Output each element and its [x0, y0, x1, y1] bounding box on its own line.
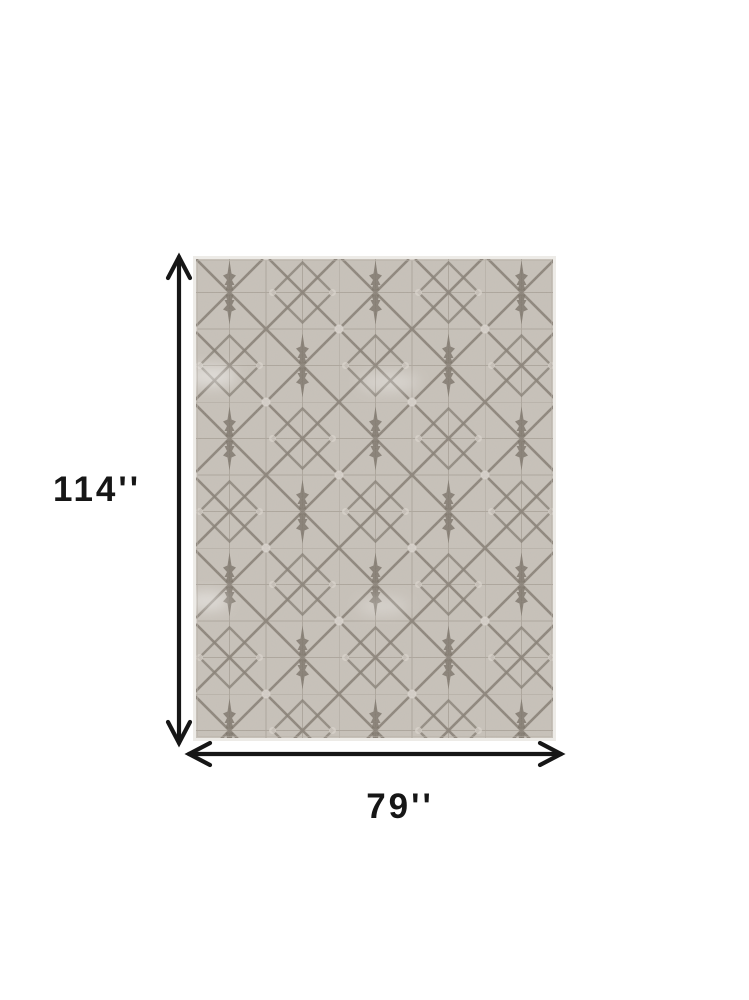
horizontal-dimension-arrow-icon: [184, 734, 566, 774]
product-dimension-image: 114'' 79'': [0, 0, 749, 1000]
rug-image: [193, 256, 556, 741]
rug-pattern-graphic: [193, 256, 556, 741]
height-dimension-label: 114'': [22, 470, 172, 510]
width-dimension-label: 79'': [330, 787, 470, 827]
